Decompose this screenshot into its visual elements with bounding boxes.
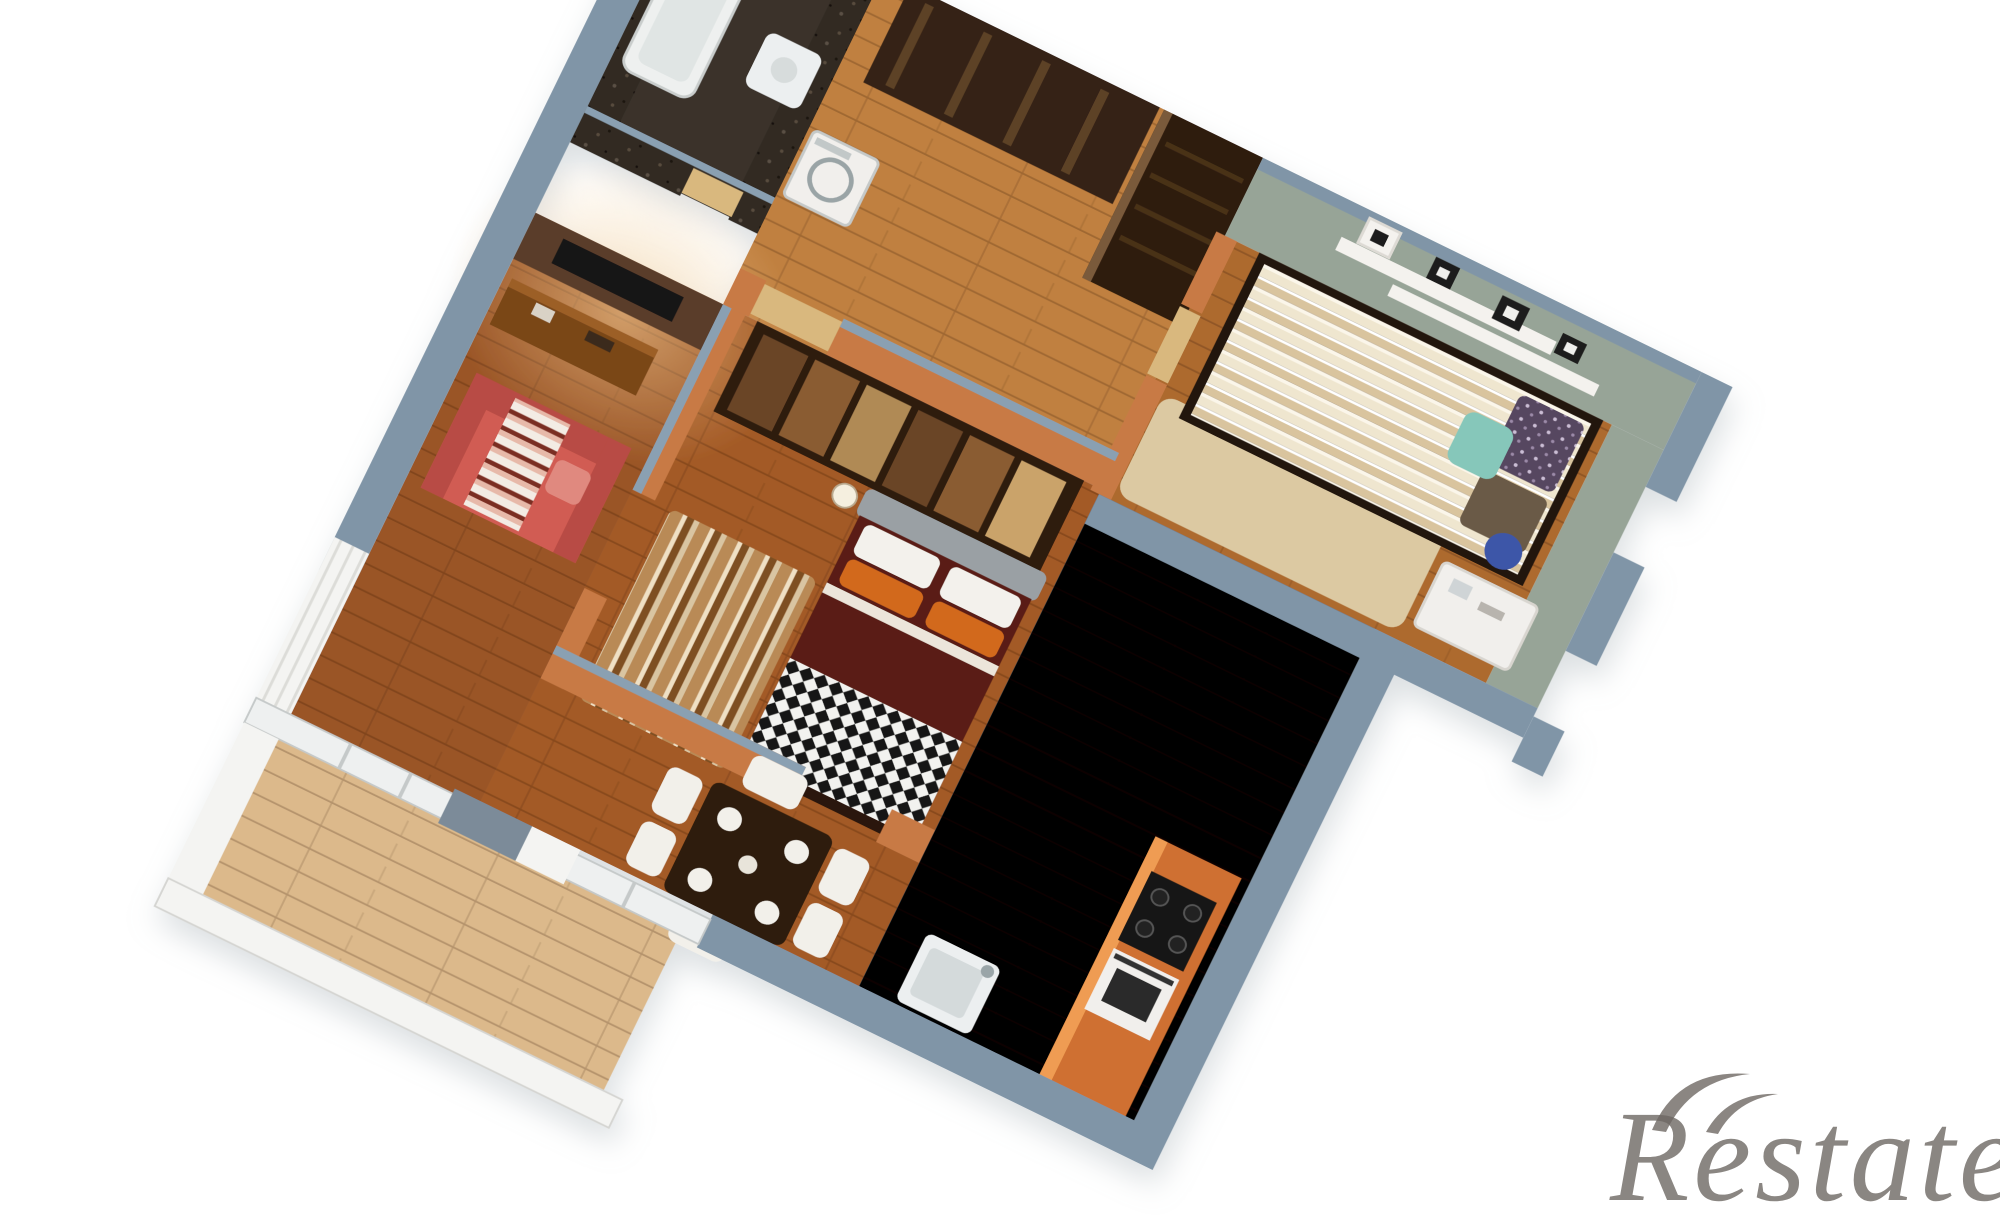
watermark: Restate (1609, 1073, 2000, 1223)
apartment (136, 0, 1733, 1223)
floorplan-render: Restate (0, 0, 2000, 1223)
watermark-text: Restate (1609, 1085, 2000, 1223)
floorplan-svg: Restate (0, 0, 2000, 1223)
